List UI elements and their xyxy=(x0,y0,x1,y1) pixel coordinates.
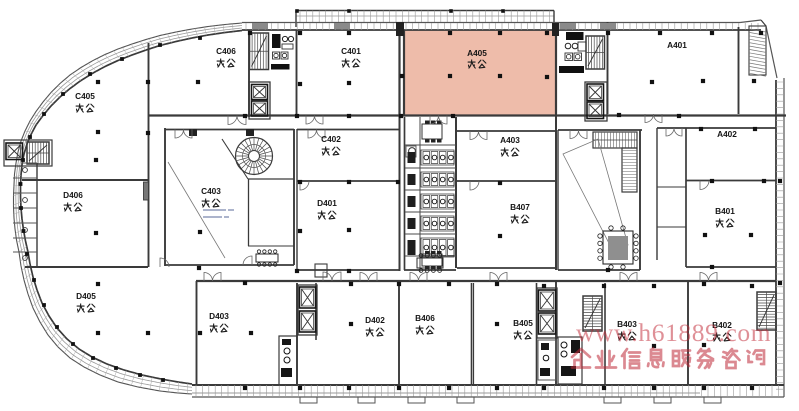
svg-text:C403: C403 xyxy=(201,186,221,196)
svg-text:A402: A402 xyxy=(717,129,737,139)
svg-text:D406: D406 xyxy=(63,190,83,200)
svg-text:A405: A405 xyxy=(467,48,487,58)
svg-text:B405: B405 xyxy=(513,318,533,328)
svg-text:A403: A403 xyxy=(500,135,520,145)
svg-text:C401: C401 xyxy=(341,46,361,56)
svg-text:D405: D405 xyxy=(76,291,96,301)
svg-text:B406: B406 xyxy=(415,313,435,323)
svg-text:www.h61889.com: www.h61889.com xyxy=(576,318,771,347)
svg-text:A401: A401 xyxy=(667,40,687,50)
svg-text:D401: D401 xyxy=(317,198,337,208)
svg-text:D403: D403 xyxy=(209,311,229,321)
svg-text:C406: C406 xyxy=(216,46,236,56)
svg-text:D402: D402 xyxy=(365,315,385,325)
svg-text:B407: B407 xyxy=(510,202,530,212)
svg-text:B401: B401 xyxy=(715,206,735,216)
svg-text:C405: C405 xyxy=(75,91,95,101)
svg-text:C402: C402 xyxy=(321,134,341,144)
